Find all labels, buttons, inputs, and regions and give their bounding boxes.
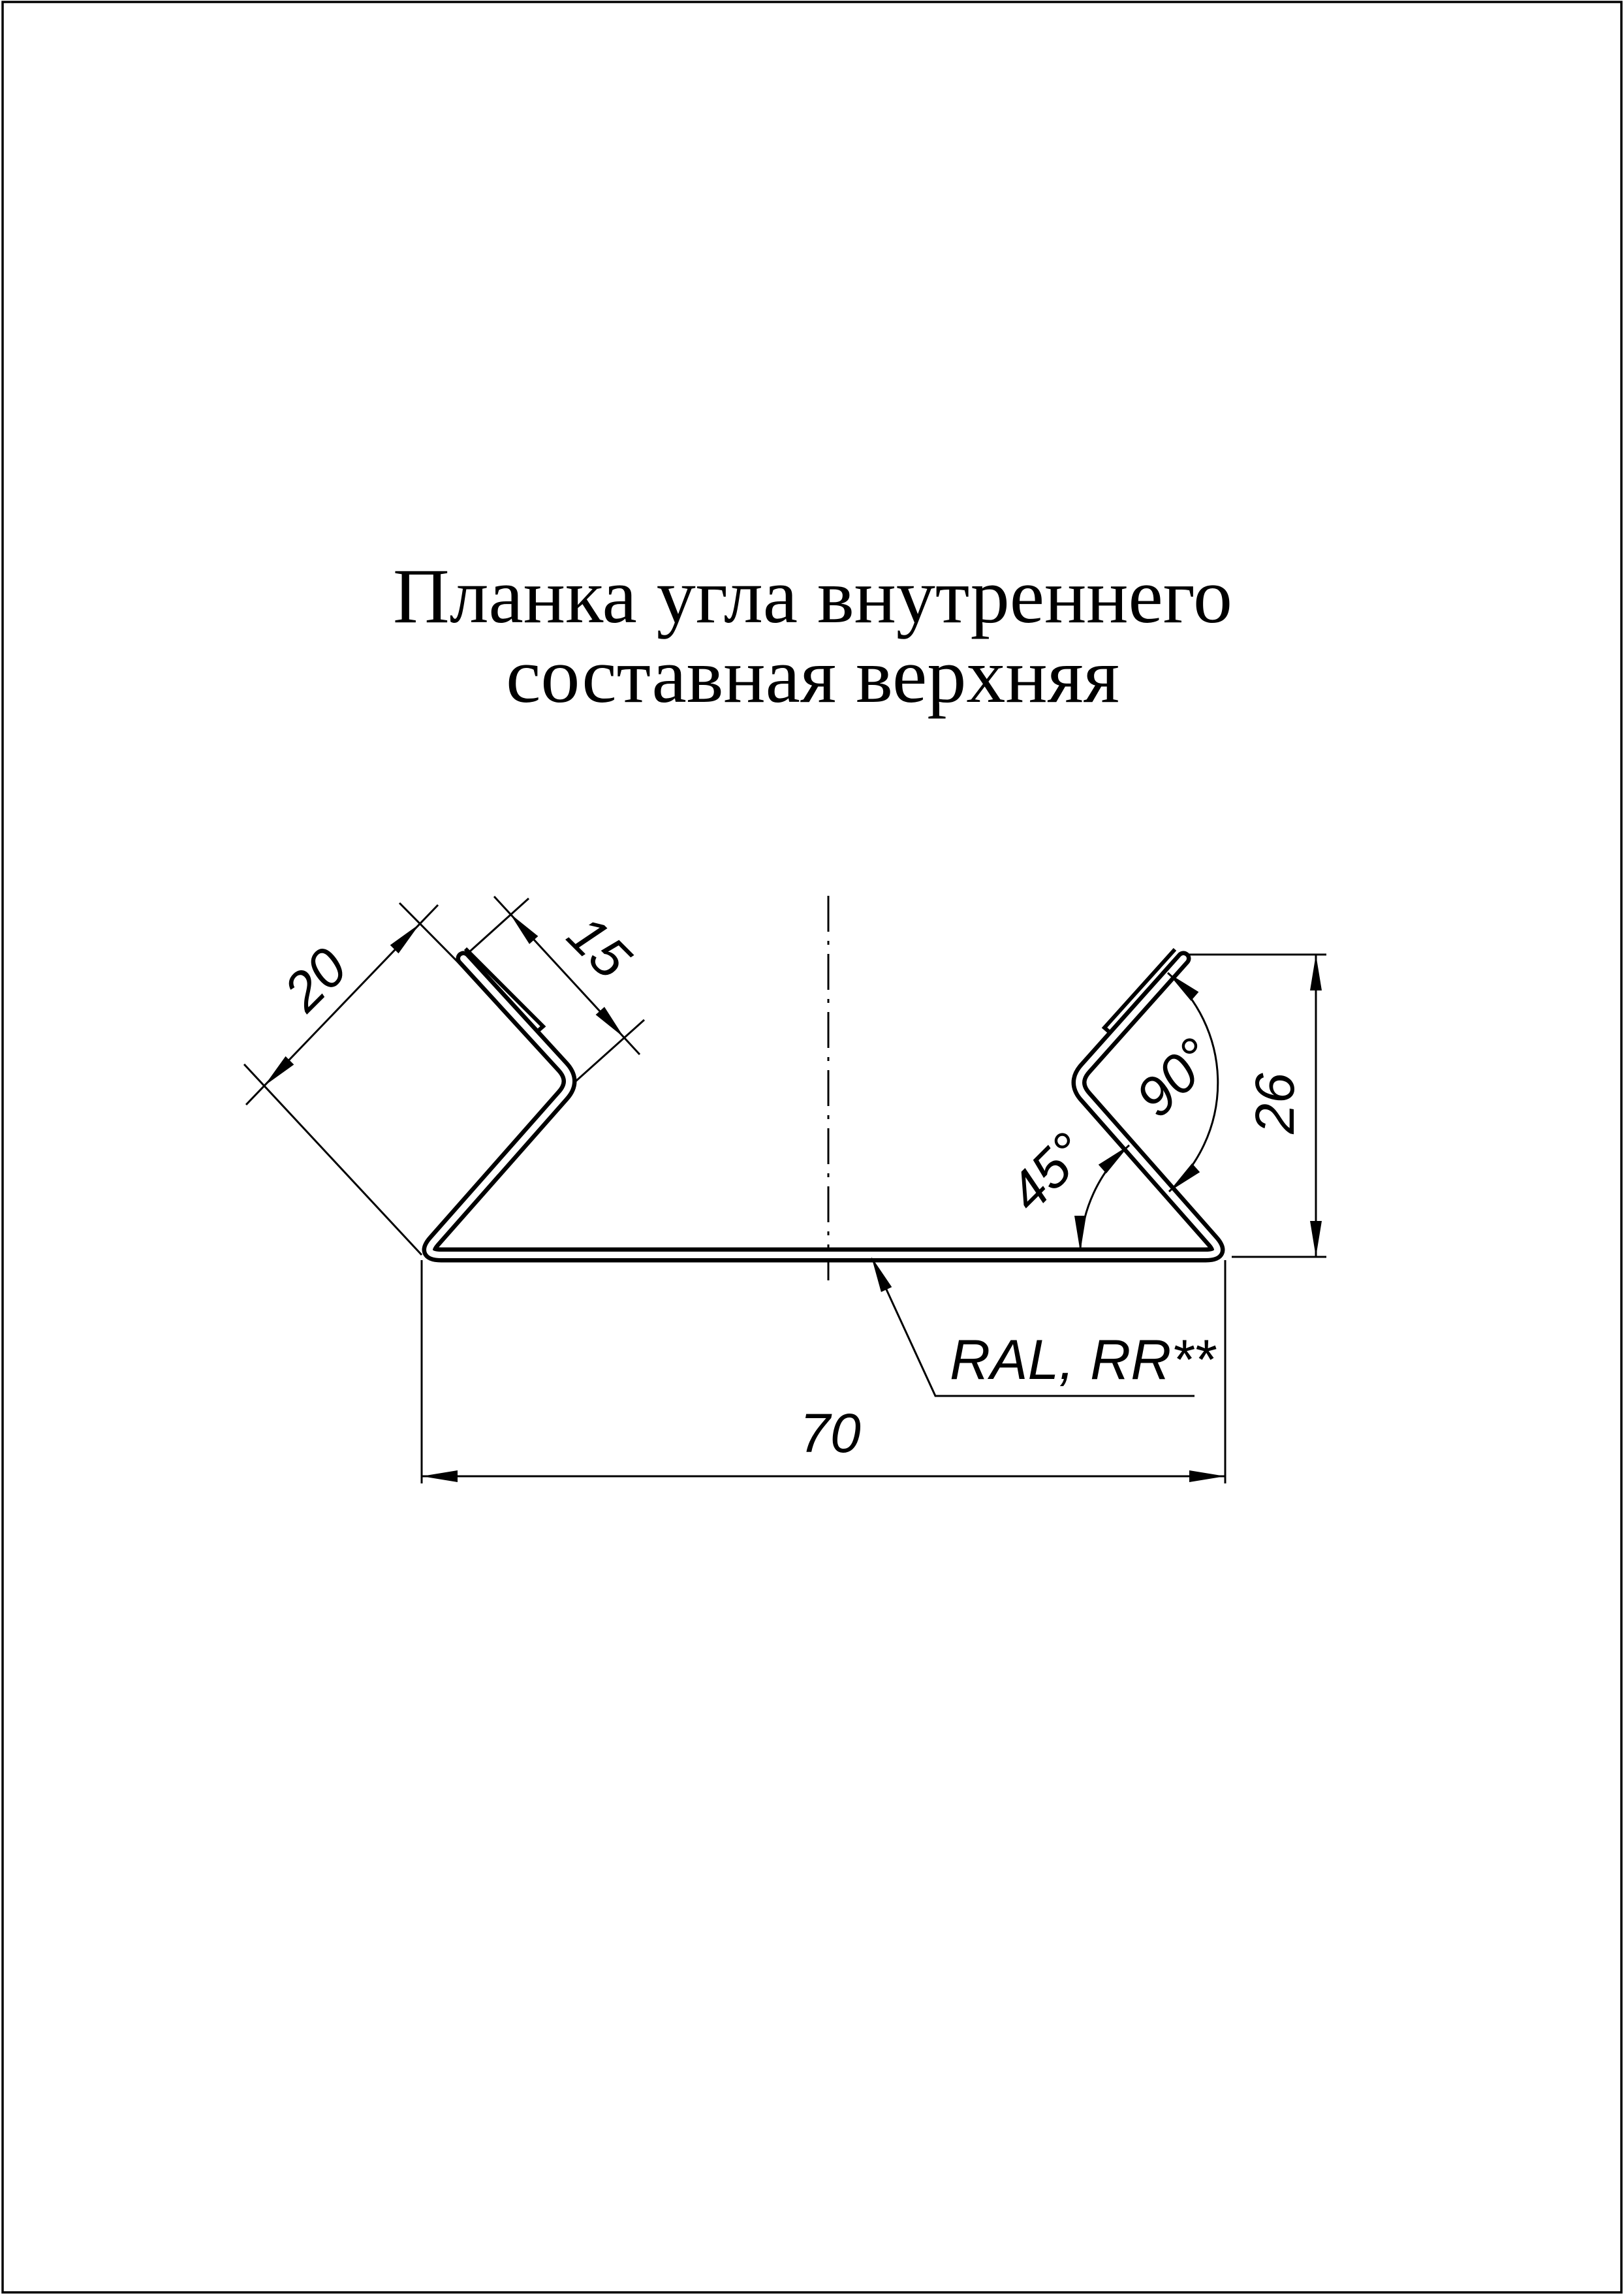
arrow-15-lower: [596, 1007, 624, 1037]
sheet-profile-outline: [429, 958, 1217, 1255]
arrow-26-bottom: [1310, 1221, 1322, 1257]
arrow-26-top: [1310, 955, 1322, 990]
material-label: RAL, RR**: [950, 1329, 1217, 1391]
arrow-20-upper: [390, 924, 420, 953]
arrow-70-left: [422, 1470, 458, 1482]
arrow-20-lower: [264, 1056, 294, 1086]
arrow-90-lower: [1169, 1163, 1200, 1192]
ext-line-20-lower: [244, 1064, 422, 1255]
arrow-45-base: [1074, 1216, 1086, 1252]
hem-tail-left: [465, 949, 543, 1031]
dim-label-45deg: 45°: [997, 1121, 1099, 1223]
arrow-90-upper: [1168, 973, 1198, 1001]
arrow-70-right: [1189, 1470, 1225, 1482]
drawing-title-line2: составная верхняя: [506, 632, 1119, 719]
ext-line-15-upper: [463, 898, 529, 957]
arrow-45-upper: [1099, 1145, 1129, 1173]
dim-label-20: 20: [272, 936, 358, 1023]
dim-label-26: 26: [1244, 1073, 1305, 1135]
ext-line-15-lower: [576, 1020, 644, 1081]
arrow-15-upper: [510, 913, 538, 944]
drawing-title-line1: Планка угла внутреннего: [393, 552, 1232, 639]
drawing-page: Планка угла внутреннего составная верхня…: [0, 0, 1624, 2295]
dim-label-90deg: 90°: [1124, 1026, 1226, 1128]
page-border: [3, 2, 1621, 2292]
dim-label-70: 70: [800, 1402, 861, 1464]
